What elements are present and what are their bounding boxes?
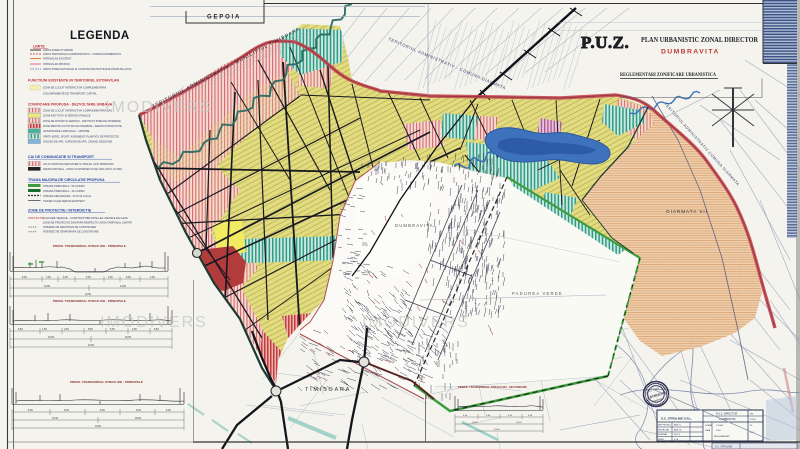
svg-text:CULOARE TEHNICE - CONSTRUCTIBI: CULOARE TEHNICE - CONSTRUCTIBILITATE LEA… [43,216,128,220]
svg-text:TRAMA MAJORA DE CIRCULATIE: TRAMA MAJORA DE CIRCULATIE PROPUSA [28,178,105,182]
svg-text:PR.: PR. [750,414,754,416]
svg-text:OGLINZI DE APA, CURSURI DE APA: OGLINZI DE APA, CURSURI DE APA, CANALE D… [43,140,113,144]
svg-text:6,00: 6,00 [166,409,171,412]
svg-text:ZONA DE PROTECTIE SANITARA RES: ZONA DE PROTECTIE SANITARA RESPECTIV ZON… [43,221,132,225]
svg-text:1:10000: 1:10000 [716,425,724,427]
svg-text:10,00: 10,00 [516,422,522,424]
svg-text:ARH. D.: ARH. D. [674,424,682,427]
svg-text:16,00: 16,00 [48,336,55,339]
svg-text:8,00: 8,00 [126,276,131,279]
svg-text:GEPOIA: GEPOIA [207,15,241,21]
svg-text:ZONA DE LOCUIT INTERACTIVA CO: ZONA DE LOCUIT INTERACTIVA COMPLEMENTARA… [43,108,112,112]
svg-text:24,00: 24,00 [494,429,500,431]
svg-text:ZONA DE LOCUIT INTERACTIVA COM: ZONA DE LOCUIT INTERACTIVA COMPLEMENTARA [43,86,107,90]
svg-text:PL.: PL. [750,425,753,427]
svg-text:ARH. M.: ARH. M. [674,429,682,432]
svg-text:FUNCTIUNI EXISTENTE IN TERITOR: FUNCTIUNI EXISTENTE IN TERITORIUL EXTRAV… [28,79,119,83]
svg-text:26,50: 26,50 [125,336,132,339]
svg-text:IMODIVERS: IMODIVERS [105,99,213,116]
svg-text:6,00: 6,00 [64,409,69,412]
svg-text:GIARMATA VII: GIARMATA VII [666,209,708,214]
svg-text:DUMBRAVITA: DUMBRAVITA [661,49,720,56]
svg-text:33,00: 33,00 [95,425,102,428]
svg-text:PROFIL TRANSVERSAL STRAZI H50: PROFIL TRANSVERSAL STRAZI H50 - PRINCIPA… [53,244,126,248]
svg-text:8,00: 8,00 [22,276,27,279]
svg-text:S. M.: S. M. [674,439,679,441]
svg-text:GOSPODARIE COMUNALA - CIMITIRE: GOSPODARIE COMUNALA - CIMITIRE [43,129,90,133]
svg-text:14,50: 14,50 [120,285,127,288]
svg-text:S.C. STROLINE S.R.L.: S.C. STROLINE S.R.L. [661,417,692,421]
svg-text:9,00: 9,00 [108,276,113,279]
svg-text:IMODIVERS: IMODIVERS [100,314,208,331]
svg-text:DUMBRAVITA: DUMBRAVITA [395,223,434,228]
svg-text:2,00: 2,00 [150,276,155,279]
svg-text:6,00: 6,00 [63,276,68,279]
svg-text:18,00: 18,00 [135,417,142,420]
svg-text:STRADA SECUNDARA - 30 SI 24 LO: STRADA SECUNDARA - 30 SI 24 LOCAL [43,194,92,198]
svg-text:10,00: 10,00 [472,422,478,424]
svg-text:1,50: 1,50 [42,328,47,331]
svg-text:ING. R.: ING. R. [674,434,681,436]
svg-text:TRASEU CALE FERATA EXISTENT: TRASEU CALE FERATA EXISTENT [43,199,85,203]
svg-text:CAI SI STATIUNI FEROVIARE SI: CAI SI STATIUNI FEROVIARE SI TRIAJUL CFR… [43,162,114,166]
svg-text:ZONA DE DOTARI SI SERVICII -: ZONA DE DOTARI SI SERVICII - INSTITUTII … [43,119,121,123]
svg-text:CAI DE COMUNICATIE SI TRANSPOR: CAI DE COMUNICATIE SI TRANSPORT [28,155,95,159]
svg-text:27/04: 27/04 [750,419,756,421]
svg-text:15,00: 15,00 [52,417,59,420]
svg-text:6,00: 6,00 [86,276,91,279]
svg-text:LIMITA ZONEI STUDIATE: LIMITA ZONEI STUDIATE [43,48,73,52]
svg-text:5,50: 5,50 [88,328,93,331]
svg-text:VERIF.: VERIF. [658,439,665,441]
svg-text:LEGENDA: LEGENDA [70,30,130,42]
svg-text:PROFIL TRANSVERSAL STRAZI H24: PROFIL TRANSVERSAL STRAZI H24 - SECUNDAR… [458,385,527,389]
svg-text:6,00: 6,00 [136,409,141,412]
svg-text:DRUM NATIONAL - ZONA SI INTERS: DRUM NATIONAL - ZONA SI INTERSECTII DE N… [43,167,123,171]
svg-text:SCARA: SCARA [705,424,713,427]
svg-text:✕✕✕✕: ✕✕✕✕ [28,231,38,234]
svg-text:3,00: 3,00 [46,276,51,279]
svg-text:ZONA PENTRU ACTIVITATI ECONOMI: ZONA PENTRU ACTIVITATI ECONOMICE - SERVI… [43,124,122,128]
svg-text:PROTECTIE: PROTECTIE [28,216,44,220]
svg-text:INTERDICTIE TEMPORARA DE CONST: INTERDICTIE TEMPORARA DE CONSTRUIRE [43,230,99,234]
svg-text:REGLEMENTARI: REGLEMENTARI [714,435,730,438]
svg-text:LIMITA TERITORIULUI ADMINISTRA: LIMITA TERITORIULUI ADMINISTRATIV - COMU… [43,52,121,56]
svg-text:INTERDICTIE DEFINITIVA DE CON: INTERDICTIE DEFINITIVA DE CONSTRUIRE [43,225,96,229]
svg-text:PLAN URBANISTIC ZONAL DIRECTOR: PLAN URBANISTIC ZONAL DIRECTOR [641,36,759,44]
svg-text:2,50: 2,50 [64,328,69,331]
svg-text:S.C. STROLINE: S.C. STROLINE [715,446,733,449]
svg-text:24,50: 24,50 [44,285,51,288]
svg-text:PROIECTAT: PROIECTAT [658,429,670,432]
svg-text:✕✕✕✕: ✕✕✕✕ [28,226,38,229]
svg-text:LIMITE: LIMITE [33,45,45,49]
svg-text:DATA: DATA [705,429,711,432]
svg-text:P.U.Z.: P.U.Z. [581,33,629,52]
svg-text:6,00: 6,00 [28,409,33,412]
svg-text:PROFIL TRANSVERSAL STRAZI H40: PROFIL TRANSVERSAL STRAZI H40 - PRINCIPA… [53,299,126,303]
svg-text:42,50: 42,50 [88,344,95,347]
svg-text:9,00: 9,00 [100,409,105,412]
svg-text:LIMITA ZONEI NATURALE SI CONST: LIMITA ZONEI NATURALE SI CONSTRUITE PROT… [43,67,132,71]
svg-text:SI ECHIPAMENTE DE TRANSPORT CA: SI ECHIPAMENTE DE TRANSPORT CAPITAL [43,92,98,96]
svg-text:44,50: 44,50 [85,293,92,296]
svg-text:DESENAT: DESENAT [658,433,668,436]
svg-text:PROFIL TRANSVERSAL STRAZI H30: PROFIL TRANSVERSAL STRAZI H30 - PRINCIPA… [70,380,143,384]
svg-text:INTRAVILAN PROPUS: INTRAVILAN PROPUS [43,62,70,66]
svg-text:8,50: 8,50 [18,328,23,331]
svg-text:ZONE DE PROTECTIE / INTERDIC: ZONE DE PROTECTIE / INTERDICTIE [28,209,92,213]
svg-text:IMODIVERS: IMODIVERS [362,314,470,331]
svg-text:SPATII VERZI, SPORT, AGREMENT,: SPATII VERZI, SPORT, AGREMENT, PLANTATII… [43,134,119,138]
svg-text:TIMISOARA: TIMISOARA [305,387,351,393]
svg-text:STRADA PRINCIPALA - 50 CURSIV: STRADA PRINCIPALA - 50 CURSIV [43,184,85,188]
svg-text:SEF PROIECT: SEF PROIECT [658,425,672,427]
svg-text:P.U.Z. DIRECTOR: P.U.Z. DIRECTOR [716,412,737,416]
svg-text:ZONA INSTITUTII SI SERVICII P: ZONA INSTITUTII SI SERVICII PUBLICE [43,114,91,118]
svg-text:INTRAVILAN EXISTENT: INTRAVILAN EXISTENT [43,57,72,61]
svg-text:ZONIFICARE PROPUSA - DEZVOLTAR: ZONIFICARE PROPUSA - DEZVOLTARE URBANA [28,103,113,107]
svg-text:STRADA PRINCIPALA - 40 CURSIV: STRADA PRINCIPALA - 40 CURSIV [43,189,85,193]
svg-text:PADUREA VERDE: PADUREA VERDE [512,291,563,296]
svg-text:REGLEMENTARI ZONIFICARE URBANI: REGLEMENTARI ZONIFICARE URBANISTICA [620,73,716,78]
